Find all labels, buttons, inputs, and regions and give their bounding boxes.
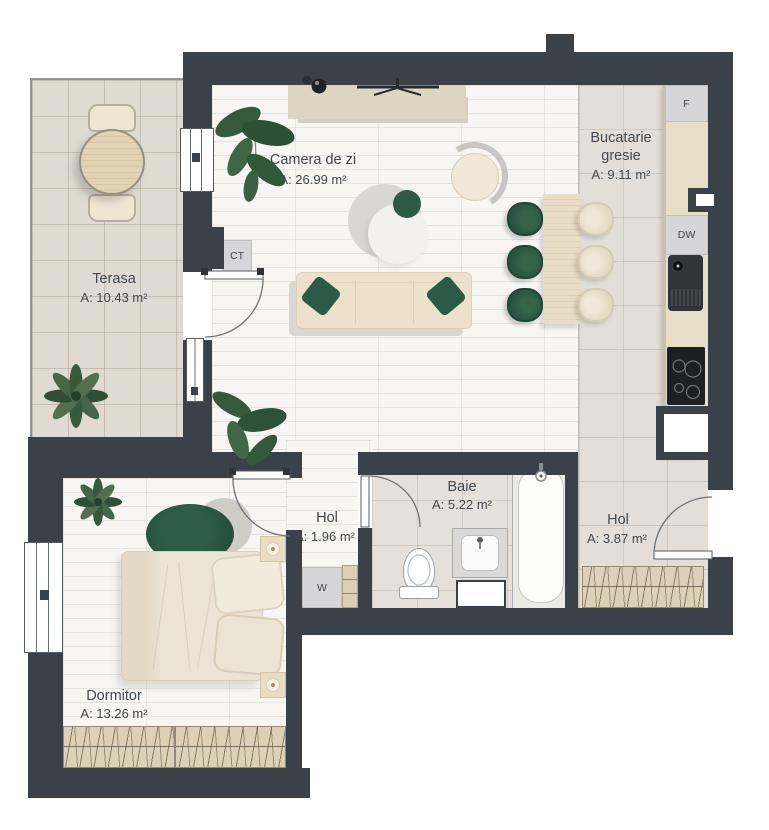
window-bedroom bbox=[24, 542, 63, 653]
lamp-bulb bbox=[271, 547, 275, 551]
nightstand bbox=[260, 672, 286, 698]
washer-label: W bbox=[317, 582, 327, 594]
wall bbox=[358, 452, 372, 475]
room-label-hall-entry: Hol bbox=[607, 512, 629, 528]
wall bbox=[63, 452, 288, 478]
rug-green bbox=[393, 190, 421, 218]
room-area-kitchen: A: 9.11 m² bbox=[591, 167, 650, 182]
boiler-label: CT bbox=[230, 250, 244, 262]
washer-box: W bbox=[302, 567, 342, 608]
dining-chair-beige bbox=[578, 202, 614, 236]
wardrobe-divider bbox=[174, 727, 176, 769]
wall bbox=[372, 452, 578, 475]
dining-chair-green bbox=[507, 202, 543, 236]
wall bbox=[286, 530, 302, 798]
shaft-opening bbox=[664, 414, 708, 452]
room-label-hall-small: Hol bbox=[316, 510, 338, 526]
wall bbox=[286, 452, 302, 478]
vanity-sink bbox=[461, 535, 499, 571]
room-area-terrace: A: 10.43 m² bbox=[80, 290, 147, 305]
wall bbox=[28, 768, 310, 798]
room-label-kitchen-line1: Bucatarie bbox=[590, 130, 651, 146]
table-lamp bbox=[266, 542, 280, 556]
room-label-terrace: Terasa bbox=[92, 271, 136, 287]
bathtub-basin bbox=[518, 468, 564, 603]
terrace-table bbox=[79, 129, 145, 195]
dishwasher-box: DW bbox=[665, 215, 708, 255]
entry-wardrobe bbox=[582, 566, 704, 608]
duvet-fold-line bbox=[178, 562, 190, 672]
duvet-fold-line bbox=[153, 564, 169, 669]
wall bbox=[183, 52, 733, 85]
toilet-bowl bbox=[403, 548, 435, 590]
room-label-living: Camera de zi bbox=[270, 152, 356, 168]
sofa-cushion-divider bbox=[355, 281, 356, 324]
toilet-tank bbox=[399, 586, 439, 599]
kitchen-sink bbox=[668, 255, 703, 311]
bed-pillow bbox=[213, 613, 286, 677]
room-area-hall-small: A: 1.96 m² bbox=[295, 529, 355, 544]
dining-table bbox=[543, 194, 581, 324]
dishwasher-label: DW bbox=[678, 229, 696, 241]
wall bbox=[546, 34, 574, 52]
room-label-kitchen-line2: gresie bbox=[601, 148, 641, 164]
wall bbox=[210, 227, 224, 269]
wall bbox=[358, 528, 372, 608]
armchair-seat bbox=[451, 153, 499, 201]
dining-chair-beige bbox=[578, 288, 614, 322]
tv-console bbox=[288, 85, 466, 119]
hall-shelf-strip bbox=[342, 565, 358, 608]
window-fixed-panel bbox=[186, 338, 204, 402]
sofa-cushion-divider bbox=[413, 281, 414, 324]
dining-chair-green bbox=[507, 288, 543, 322]
nightstand bbox=[260, 536, 286, 562]
window-terrace bbox=[180, 128, 214, 192]
bedroom-wardrobe bbox=[63, 726, 286, 768]
room-area-hall-entry: A: 3.87 m² bbox=[587, 531, 647, 546]
fridge-box: F bbox=[665, 85, 708, 122]
dining-chair-beige bbox=[578, 245, 614, 279]
lamp-bulb bbox=[271, 683, 275, 687]
room-area-living: A: 26.99 m² bbox=[279, 172, 346, 187]
dining-chair-green bbox=[507, 245, 543, 279]
terrace-chair bbox=[88, 194, 136, 222]
boiler-box: CT bbox=[222, 240, 252, 272]
wall bbox=[286, 608, 733, 635]
fridge-label: F bbox=[683, 98, 689, 110]
room-label-bathroom: Baie bbox=[447, 479, 476, 495]
room-label-bedroom: Dormitor bbox=[86, 688, 142, 704]
table-lamp bbox=[266, 678, 280, 692]
wall bbox=[565, 452, 578, 608]
terrace-chair bbox=[88, 104, 136, 132]
vanity-cabinet bbox=[456, 580, 506, 608]
floor-plan: F DW W CT bbox=[0, 0, 769, 830]
wall-bracket-opening bbox=[696, 194, 714, 206]
room-area-bathroom: A: 5.22 m² bbox=[432, 497, 492, 512]
stove-cooktop bbox=[667, 347, 705, 405]
room-area-bedroom: A: 13.26 m² bbox=[80, 706, 147, 721]
